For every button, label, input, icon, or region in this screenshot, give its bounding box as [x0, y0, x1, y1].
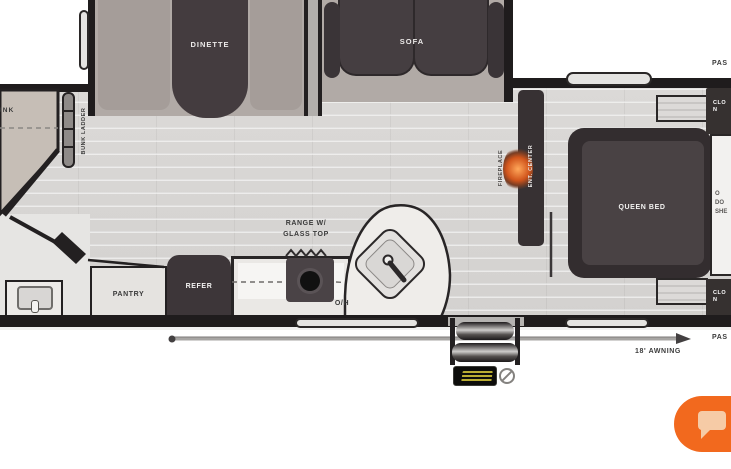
refer-label: REFER [167, 283, 231, 290]
overhead-label: O/H [326, 300, 358, 307]
range-burner [300, 271, 320, 291]
bedroom-window-bottom [565, 318, 649, 328]
range-label-line1: RANGE W/ [262, 220, 350, 227]
pantry-door-swing [88, 260, 164, 267]
awning-end-dot [169, 336, 176, 343]
kitchen-window [295, 318, 419, 328]
awning-arrow [676, 333, 691, 344]
range-arrow-zigzag [286, 250, 326, 256]
plan-vector-overlay [0, 0, 731, 469]
bunk-ladder-label: BUNK LADDER [81, 91, 87, 171]
awning-label: 18' AWNING [613, 348, 703, 355]
entry-step [456, 322, 514, 340]
ent-center-label: ENT. CENTER [528, 126, 534, 206]
dinette-label: DINETTE [172, 40, 248, 49]
solid-step-logo [453, 366, 497, 386]
sofa-label: SOFA [372, 37, 452, 46]
chat-button[interactable] [674, 396, 731, 452]
bath-door-jamb [52, 232, 86, 264]
bunk-label: BUNK [0, 107, 33, 114]
range-label-line2: GLASS TOP [262, 231, 350, 238]
chat-bubble-icon [698, 411, 726, 430]
fireplace-label: FIREPLACE [498, 128, 504, 208]
pantry-label: PANTRY [90, 291, 167, 298]
circle-slash-icon [499, 368, 515, 384]
pass-thru-label-top: PAS [712, 60, 731, 67]
entry-step [452, 343, 518, 362]
floorplan-page: CLO N CLO N O DO SHE [0, 0, 731, 469]
queen-bed-label: QUEEN BED [572, 204, 712, 211]
pass-thru-label-bottom: PAS [712, 334, 731, 341]
